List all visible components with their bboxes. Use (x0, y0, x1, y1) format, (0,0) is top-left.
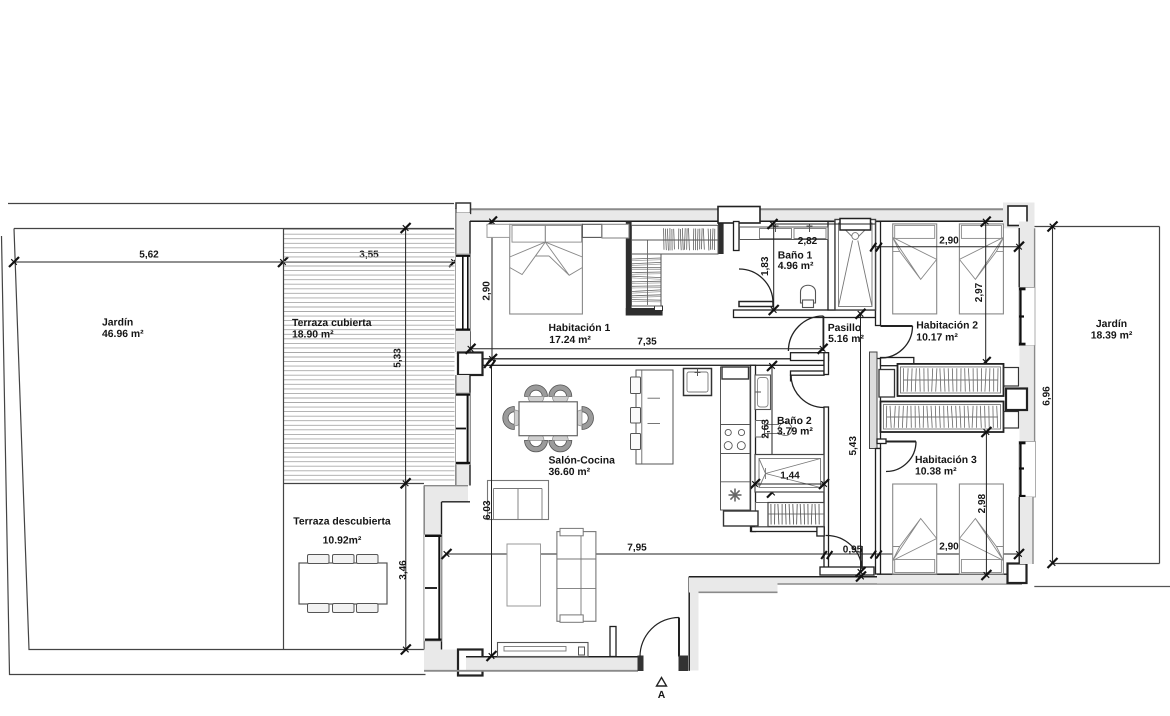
svg-text:6,03: 6,03 (482, 500, 493, 520)
svg-text:2,90: 2,90 (939, 236, 959, 247)
svg-text:3,46: 3,46 (398, 560, 409, 580)
svg-text:Habitación 1: Habitación 1 (549, 323, 611, 334)
svg-text:A: A (658, 690, 666, 701)
svg-text:3,55: 3,55 (359, 250, 379, 261)
svg-text:2,90: 2,90 (939, 542, 959, 553)
svg-text:3.79 m²: 3.79 m² (777, 427, 813, 438)
svg-text:2,98: 2,98 (977, 493, 988, 513)
svg-text:7,35: 7,35 (637, 336, 657, 347)
svg-text:6,96: 6,96 (1042, 386, 1053, 406)
svg-text:Jardín: Jardín (1096, 319, 1127, 330)
svg-text:Terraza cubierta: Terraza cubierta (292, 318, 372, 329)
svg-text:Terraza descubierta: Terraza descubierta (293, 517, 391, 528)
svg-text:1,83: 1,83 (760, 256, 771, 276)
svg-text:5,43: 5,43 (848, 436, 859, 456)
svg-text:5.16 m²: 5.16 m² (828, 334, 864, 345)
svg-text:10.17 m²: 10.17 m² (916, 333, 958, 344)
svg-text:2,90: 2,90 (482, 281, 493, 301)
svg-text:2,97: 2,97 (974, 282, 985, 302)
svg-text:Salón-Cocina: Salón-Cocina (549, 455, 616, 466)
svg-text:46.96 m²: 46.96 m² (102, 329, 144, 340)
svg-text:4.96 m²: 4.96 m² (778, 261, 814, 272)
svg-text:36.60 m²: 36.60 m² (549, 467, 591, 478)
svg-text:17.24 m²: 17.24 m² (549, 335, 591, 346)
svg-text:Baño 2: Baño 2 (777, 416, 812, 427)
svg-text:Jardín: Jardín (102, 318, 133, 329)
svg-text:Baño 1: Baño 1 (778, 251, 813, 262)
svg-text:18.90 m²: 18.90 m² (292, 330, 334, 341)
svg-text:Pasillo: Pasillo (828, 323, 862, 334)
svg-text:18.39 m²: 18.39 m² (1091, 331, 1133, 342)
svg-text:1,44: 1,44 (780, 471, 800, 482)
svg-text:0,95: 0,95 (843, 545, 863, 556)
svg-text:2,82: 2,82 (798, 236, 818, 247)
svg-text:Habitación 2: Habitación 2 (916, 321, 978, 332)
svg-text:10.38 m²: 10.38 m² (915, 467, 957, 478)
svg-text:5,62: 5,62 (139, 250, 159, 261)
svg-text:5,33: 5,33 (393, 348, 404, 368)
svg-text:10.92m²: 10.92m² (323, 536, 362, 547)
svg-text:2,63: 2,63 (760, 419, 771, 439)
svg-text:Habitación 3: Habitación 3 (915, 455, 977, 466)
svg-text:7,95: 7,95 (627, 543, 647, 554)
